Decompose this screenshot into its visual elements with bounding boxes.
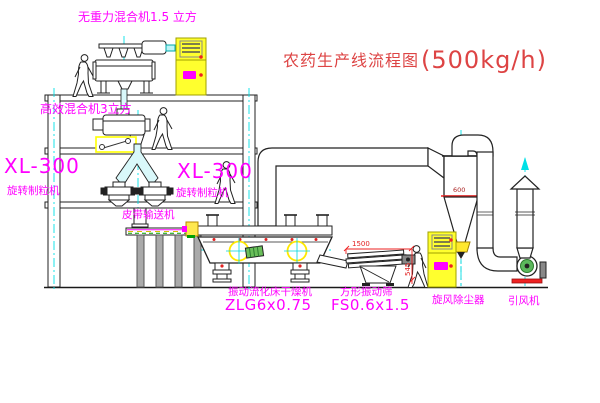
stack-flow-arrow [521,157,529,170]
person-figure [152,108,172,150]
dim-sieve-height: 545 [405,263,412,276]
label-granulator-left-name: 旋转制粒机 [7,186,60,197]
label-sieve-model: FS0.6x1.5 [331,298,410,313]
label-fan: 引风机 [508,296,540,307]
person-figure [73,55,93,97]
label-granulator-right-model: XL-300 [177,161,253,181]
label-high-eff-mixer: 高效混合机3立方 [40,103,132,115]
discharge-chute [317,255,348,268]
label-cyclone: 旋风除尘器 [432,295,485,306]
control-cabinet-top [176,38,206,95]
diagram-title-text: 农药生产线流程图 [283,47,419,74]
dryer-feed-inlet [182,222,198,238]
dim-sieve-length: 1500 [352,241,370,248]
label-belt-conveyor: 皮带输送机 [122,210,175,221]
exhaust-stack [511,176,539,258]
dim-cyclone-diameter: 600 [453,187,465,194]
control-cabinet-right [428,232,456,287]
label-dryer-model: ZLG6x0.75 [225,298,312,313]
flow-diagram-canvas: 农药生产线流程图 (500kg/h) 无重力混合机1.5 立方 高效混合机3立方… [0,0,600,403]
diagram-capacity: (500kg/h) [421,46,547,74]
label-gravity-mixer: 无重力混合机1.5 立方 [78,11,197,23]
gravity-free-mixer [93,41,175,93]
label-granulator-left-model: XL-300 [4,156,80,176]
label-granulator-right-name: 旋转制粒机 [176,188,229,199]
mixer-drive-frame [96,137,136,152]
diagram-title: 农药生产线流程图 (500kg/h) [283,46,547,74]
